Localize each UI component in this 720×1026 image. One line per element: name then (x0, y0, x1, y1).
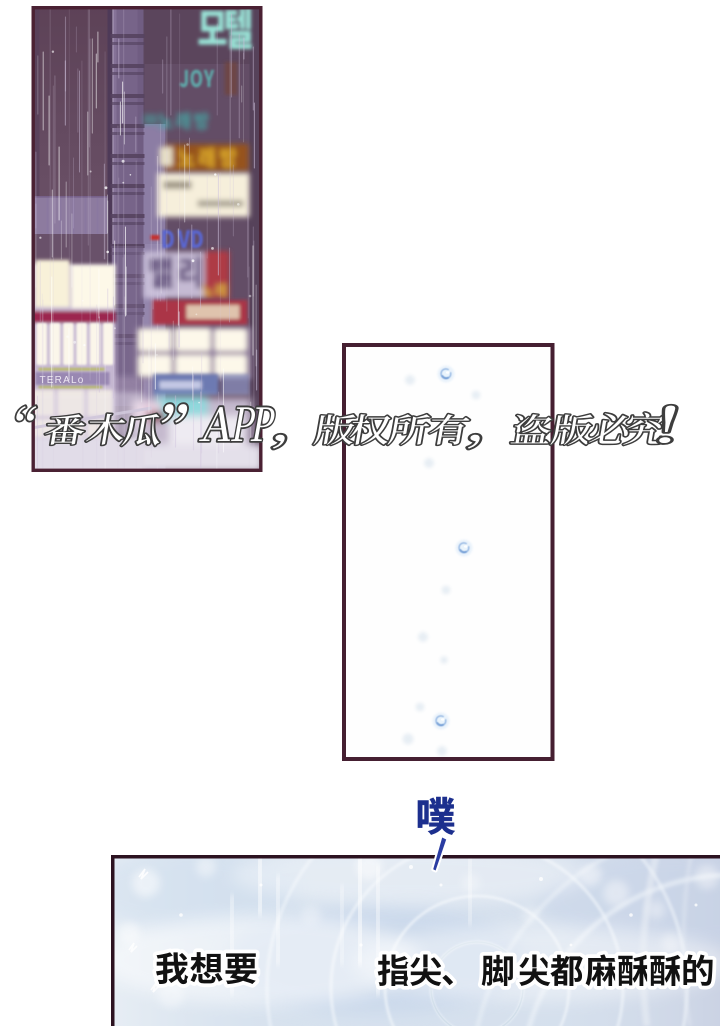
svg-text:TERALo: TERALo (40, 375, 85, 386)
